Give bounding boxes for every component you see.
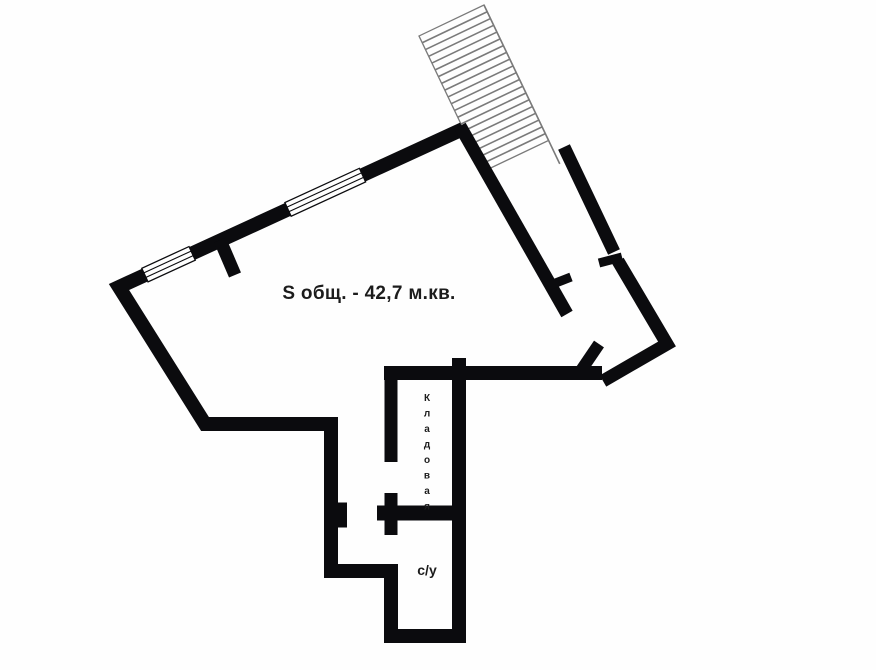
wall-stairwell-outer [564,147,667,381]
storage-room-label: Кладовая [422,393,433,517]
window-symbol-right [285,168,366,216]
window-symbol-left [142,247,196,282]
window-pane-line [289,177,363,211]
window-pane-line [287,173,361,207]
bathroom-label: с/у [417,562,436,578]
total-area-label: S общ. - 42,7 м.кв. [282,283,455,305]
floor-plan-drawing [0,0,876,670]
window-frame [285,168,366,216]
window-frame [142,247,196,282]
wall-window-stub [220,240,235,275]
wall-tick-outer-jamb [599,257,622,263]
floor-plan: S общ. - 42,7 м.кв. Кладовая с/у [0,0,876,670]
